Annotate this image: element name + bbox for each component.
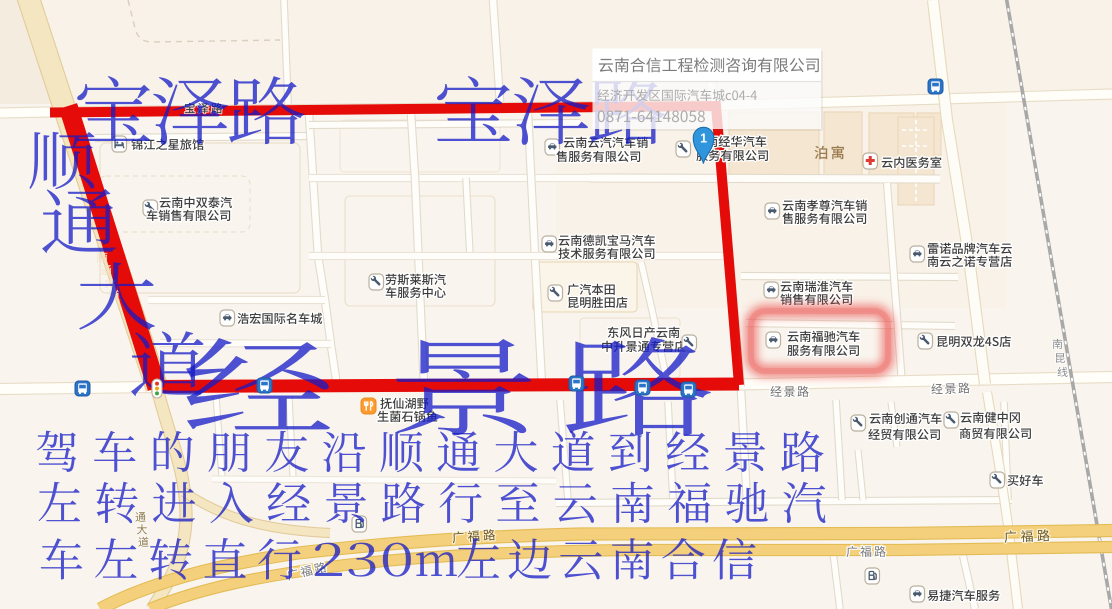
svg-text:1: 1	[700, 132, 707, 146]
